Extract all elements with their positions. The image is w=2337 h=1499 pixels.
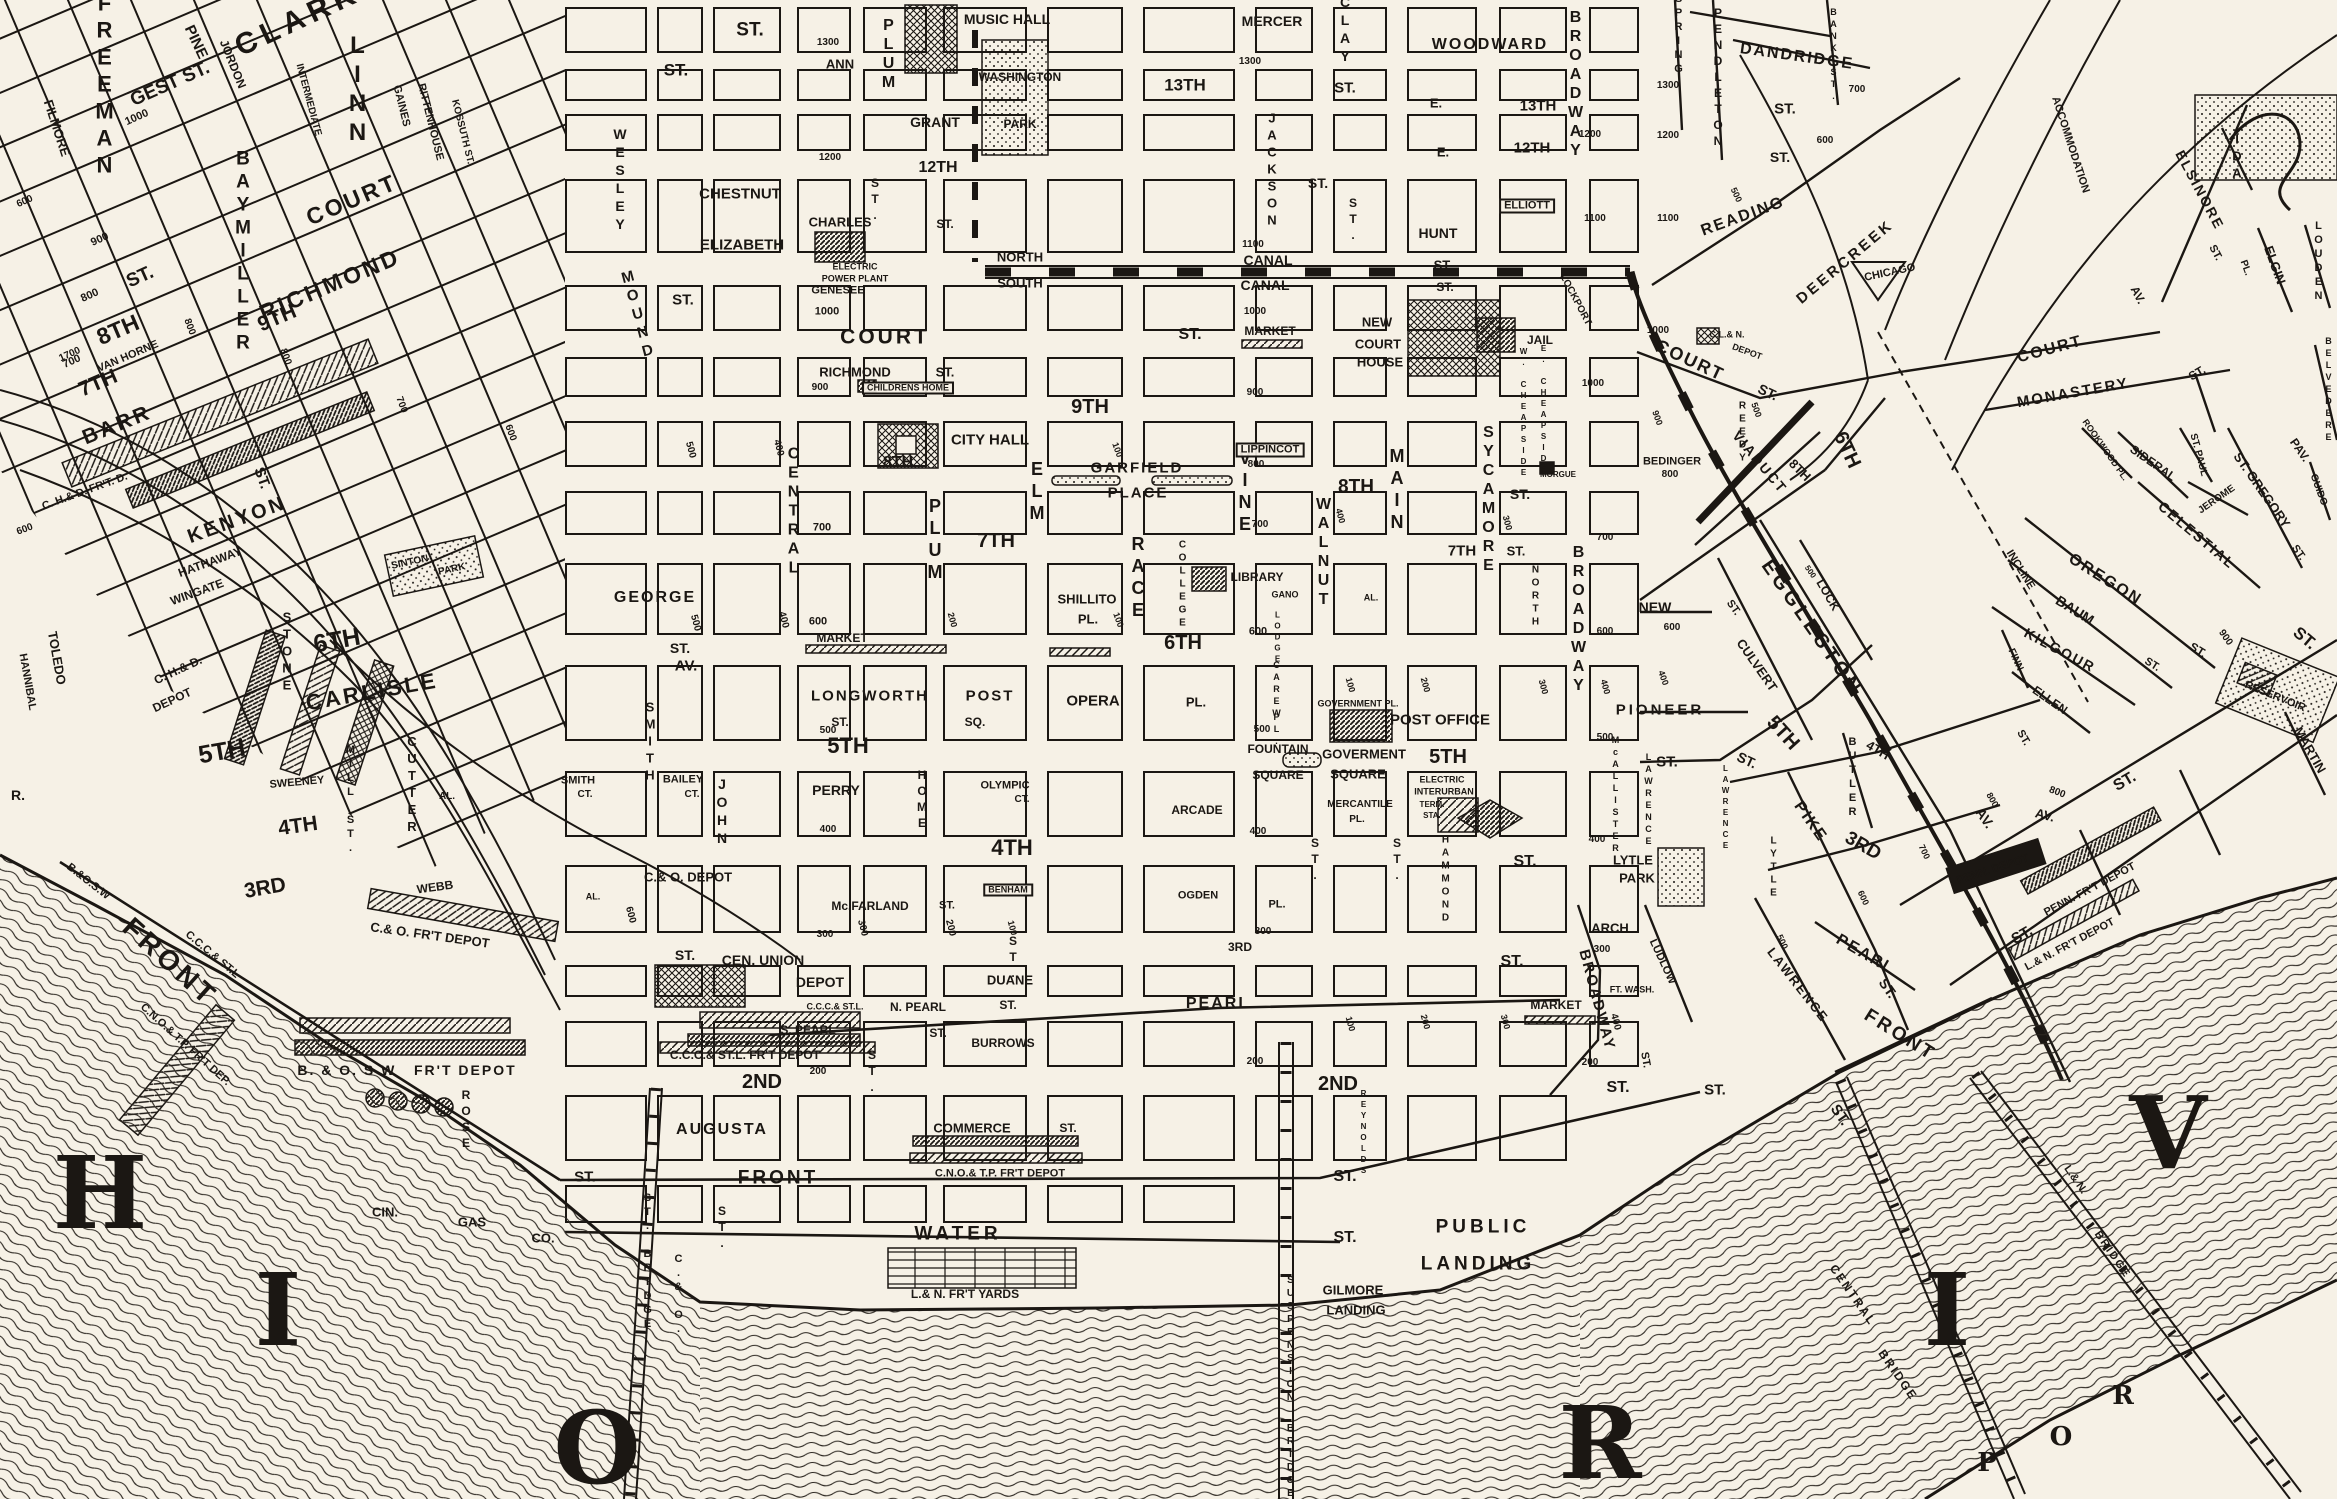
map-label: READING	[1699, 194, 1787, 239]
map-label: 1000	[124, 108, 151, 128]
map-label: McALLISTER	[1611, 735, 1620, 855]
map-label: ANN	[826, 58, 854, 71]
map-label: CANAL	[1244, 253, 1293, 267]
map-label: ST.	[2206, 243, 2223, 262]
map-label: AL.	[586, 893, 601, 902]
map-label: 200	[810, 1067, 827, 1077]
map-label: L.& N. FR'T YARDS	[911, 1288, 1019, 1300]
map-label: 900	[2216, 628, 2234, 647]
map-label: ST.	[670, 641, 690, 655]
map-label: SIDERAL	[2128, 443, 2178, 483]
map-label: MORGUE	[1540, 471, 1576, 479]
map-label: 4TH	[991, 837, 1033, 859]
map-label: 600	[1664, 623, 1681, 633]
map-label: SQUARE	[1330, 768, 1386, 781]
map-label: WALNUT	[1315, 496, 1331, 610]
map-label: HOUSE	[1357, 356, 1403, 369]
map-label: LUDLOW	[1647, 938, 1677, 986]
map-label: DEPOT	[151, 686, 194, 714]
map-label: GOVERNMENT PL.	[1317, 700, 1398, 709]
map-label: W. CHEAPSIDE	[1519, 347, 1527, 479]
map-label: ELLEN	[2030, 684, 2069, 716]
map-label: 4TH	[277, 813, 319, 839]
map-label: COURT	[1653, 336, 1728, 384]
map-label: HANNIBAL	[17, 653, 38, 711]
map-label: ST.	[1436, 281, 1453, 293]
map-label: ST.	[1391, 836, 1403, 884]
map-label: ARCH	[1591, 922, 1629, 935]
map-label: 400	[1334, 508, 1347, 525]
map-label: COURT	[2016, 334, 2085, 367]
map-label: PAV.	[2288, 436, 2312, 463]
map-label: ST.	[675, 948, 695, 962]
map-label: WASHINGTON	[979, 71, 1061, 83]
map-label: ELSINORE	[2173, 148, 2226, 232]
map-label: SMITH	[644, 700, 657, 785]
map-label: AV.	[2128, 284, 2147, 306]
map-label: ELIZABETH	[700, 238, 784, 253]
map-label: BAYMILLER	[234, 149, 253, 356]
map-label: GAINES	[391, 84, 412, 128]
map-label: PENN. DEPOT	[1956, 853, 2030, 887]
map-label: 2ND	[742, 1072, 782, 1092]
map-label: 500	[1254, 725, 1271, 735]
map-label: 400	[1589, 835, 1606, 845]
map-label: I	[1924, 1260, 1971, 1360]
map-label: CUTTER	[406, 734, 419, 836]
map-label: ST.	[1724, 598, 1742, 617]
map-label: ST.	[1507, 545, 1526, 558]
map-label: ST.	[1500, 954, 1523, 970]
map-label: 500	[683, 441, 697, 460]
map-label: GAS	[458, 1216, 486, 1229]
map-label: STONE	[281, 610, 294, 695]
map-label: S. PEARL	[780, 1024, 835, 1036]
map-label: 3RD	[1842, 828, 1884, 863]
map-label: 200	[943, 919, 957, 938]
map-label: ROOKWOOD PL.	[2081, 418, 2130, 483]
map-label: ST.	[1309, 836, 1321, 884]
map-label: POST OFFICE	[1390, 713, 1490, 728]
map-label: 1100	[1657, 214, 1679, 224]
map-label: KILGOUR	[2022, 625, 2098, 674]
map-label: 12TH	[1514, 141, 1551, 156]
map-label: PLACE	[1108, 486, 1169, 501]
map-label: LIPPINCOT	[1236, 443, 1305, 458]
map-label: CENTRAL	[785, 446, 801, 579]
map-label: ST.	[1876, 976, 1899, 1001]
map-label: 1300	[1657, 81, 1679, 91]
map-label: ST.	[1756, 381, 1780, 402]
map-label: FINN	[2006, 647, 2025, 672]
map-label: 600	[502, 423, 517, 442]
map-label: 300	[1501, 515, 1514, 532]
map-label: R	[2112, 1383, 2134, 1409]
map-label: ST.	[1704, 1083, 1726, 1098]
map-label: HOME	[916, 768, 928, 832]
map-label: WOODWARD	[1432, 37, 1548, 53]
map-label: GANO	[1272, 591, 1299, 600]
map-label: FRONT	[1861, 1006, 1939, 1065]
map-label: KOSSUTH ST.	[449, 99, 475, 166]
map-label: 100	[1110, 441, 1124, 458]
map-label: MOUND	[618, 267, 657, 363]
map-label: ST.	[2290, 624, 2320, 653]
map-label: L.& N.	[2061, 1164, 2088, 1196]
map-label: 8TH	[1338, 478, 1374, 497]
map-label: 200	[946, 612, 959, 629]
map-label: ST.	[574, 1170, 596, 1185]
map-label: 700	[1917, 843, 1932, 860]
map-label: INTERURBAN	[1414, 788, 1474, 797]
map-label: ELECTRIC	[1420, 776, 1465, 785]
map-label: 800	[2047, 785, 2066, 800]
map-label: 800	[1248, 460, 1265, 470]
map-label: CELESTIAL	[2156, 499, 2238, 571]
map-label: CANAL	[1241, 278, 1290, 292]
map-label: PENN. FR'T DEPOT	[2043, 861, 2138, 918]
map-label: C.C.C.& ST.L.	[806, 1003, 863, 1012]
map-label: CO.	[531, 1232, 554, 1245]
map-label: 8TH	[883, 455, 913, 471]
map-label: 6TH	[312, 625, 363, 658]
map-label: 1000	[1244, 307, 1266, 317]
map-label: 6TH	[1164, 633, 1202, 653]
map-label: DEPOT	[1731, 342, 1763, 361]
map-label: DUANE	[987, 974, 1033, 987]
map-label: SYCAMORE	[1480, 424, 1496, 576]
map-label: COURT	[1355, 338, 1401, 351]
map-label: 1100	[1242, 240, 1264, 250]
map-label: ST.	[1513, 854, 1536, 870]
map-label: I	[255, 1260, 302, 1360]
map-label: LAWRENCE	[1765, 945, 1831, 1024]
map-label: 200	[1419, 677, 1432, 694]
map-label: BROADWAY	[1570, 544, 1586, 696]
map-label: 1000	[815, 307, 839, 318]
map-label: 300	[1499, 1014, 1512, 1031]
map-label: MONASTERY	[2016, 376, 2130, 410]
map-label: P	[1977, 1450, 1997, 1476]
map-label: C. H.& D. FR'T. D.	[41, 471, 129, 512]
map-label: 7TH	[1448, 544, 1476, 559]
map-label: FRONT	[117, 913, 222, 1012]
map-label: SQUARE	[1252, 769, 1303, 781]
map-label: 600	[1597, 627, 1614, 637]
map-label: 3RD	[242, 874, 287, 902]
map-label: CT.	[685, 790, 700, 800]
map-label: CHICAGO	[1863, 262, 1916, 284]
map-label: MARKET	[1530, 999, 1581, 1011]
map-label: 700	[393, 395, 408, 414]
map-label: ELECTRIC	[833, 263, 878, 272]
map-label: CENTRAL	[1828, 1262, 1879, 1327]
map-label: FT. WASH.	[1610, 986, 1655, 995]
map-label: FREEMAN	[93, 0, 115, 180]
map-label: ST.	[1308, 176, 1328, 190]
map-label: SINTON	[391, 554, 430, 572]
map-label: CAREW	[1272, 660, 1281, 720]
map-label: GOVERMENT	[1322, 748, 1406, 761]
map-label: 400	[771, 439, 785, 458]
map-label: 1300	[817, 38, 839, 48]
map-label: SHILLITO	[1058, 593, 1117, 606]
map-label: ST.	[2111, 769, 2139, 794]
map-label: 200	[1419, 1014, 1432, 1031]
map-label: 300	[1537, 679, 1550, 696]
map-label: GEORGE	[614, 590, 696, 606]
map-label: 900	[89, 231, 110, 249]
map-label: 300	[817, 930, 834, 940]
map-label: ST.	[2289, 543, 2307, 562]
map-label: 1000	[1582, 379, 1604, 389]
map-label: ST.	[2009, 923, 2035, 947]
map-label: 600	[623, 906, 637, 925]
map-label: CT.	[1015, 795, 1030, 805]
map-label: COURT	[840, 327, 930, 348]
map-label: E.	[1437, 146, 1449, 159]
map-label: TOLEDO	[46, 630, 68, 685]
map-label: OGDEN	[1178, 891, 1218, 902]
map-label: 5TH	[1429, 747, 1467, 767]
map-label: GILMORE	[1323, 1284, 1384, 1297]
map-label: CIN.	[372, 1206, 398, 1219]
map-label: 2ND	[1318, 1074, 1358, 1094]
map-label: ST.	[672, 293, 694, 308]
map-label: ST.	[2014, 728, 2031, 747]
map-label: BAILEY	[663, 775, 703, 786]
map-label: DEERCREEK	[1794, 217, 1896, 306]
map-label: Mc.FARLAND	[831, 900, 908, 912]
map-label: NEW	[1639, 600, 1672, 614]
map-label: WEBB	[416, 879, 454, 896]
map-label: CITY HALL	[951, 433, 1029, 448]
map-label: PARK	[1003, 118, 1036, 130]
map-label: RESERVOIR	[2243, 680, 2307, 714]
map-label: 400	[820, 825, 837, 835]
map-label: CLAY	[1338, 0, 1352, 66]
map-label: DEPOT	[796, 975, 844, 989]
map-label: O	[553, 1398, 640, 1498]
map-label: WATER	[914, 1225, 1001, 1244]
map-label: INTERMEDIATE	[294, 63, 323, 137]
map-label: CARLISLE	[304, 670, 440, 715]
map-label: BRIDGE	[1285, 1423, 1295, 1499]
map-label: ST.	[999, 999, 1016, 1011]
map-label: FOUNTAIN	[1247, 743, 1308, 755]
map-label: 300	[855, 919, 869, 938]
map-label: 600	[1856, 889, 1871, 906]
map-label: SMITH	[561, 776, 595, 787]
map-label: ST.	[716, 1204, 728, 1252]
map-label: C.N.O.& T.P. FR'T DEP.	[138, 1002, 232, 1088]
map-label: PUBLIC	[1436, 1218, 1531, 1237]
map-label: WINGATE	[169, 577, 226, 607]
map-label: OREGON	[2066, 551, 2145, 609]
map-label: B. & O. S W FR'T DEPOT	[297, 1063, 516, 1077]
map-label: LOUDEN	[2313, 220, 2324, 304]
map-label: CEN. UNION	[722, 953, 804, 967]
map-label: AUGUSTA	[676, 1122, 768, 1138]
map-label: REYNOLDS	[1359, 1089, 1367, 1177]
map-label: 700	[813, 523, 831, 534]
map-label: ST.	[1347, 196, 1359, 244]
map-label: RITTENHOUSE	[415, 82, 445, 161]
map-label: CHILDRENS HOME	[862, 382, 954, 395]
map-label: 1300	[1239, 57, 1261, 67]
map-label: ST.	[936, 366, 955, 379]
map-label: JACKSON	[1266, 111, 1279, 230]
map-label: C.& O. DEPOT	[644, 871, 732, 884]
map-label: LINN	[345, 32, 369, 148]
map-label: ST.	[2187, 640, 2208, 659]
map-label: PARK	[437, 562, 466, 578]
map-label: PEARL	[1833, 932, 1897, 978]
map-label: 500	[688, 614, 702, 633]
map-label: 8TH	[94, 311, 143, 349]
map-label: C.L.& N.	[1710, 331, 1745, 340]
map-label: PERRY	[812, 783, 860, 797]
map-label: PIONEER	[1616, 703, 1705, 718]
map-label: PL.	[1078, 613, 1098, 626]
map-label: ST. BRIDGE	[642, 1192, 653, 1332]
map-label: GUIDO	[2308, 473, 2329, 507]
map-label: 600	[15, 194, 34, 210]
map-label: RICHMOND	[819, 366, 891, 379]
map-label: SWEENEY	[269, 775, 325, 791]
map-label: LOCK	[1814, 577, 1841, 612]
map-label: 600	[809, 617, 827, 628]
map-label: ELGIN	[2262, 244, 2288, 286]
map-label: 1200	[819, 153, 841, 163]
map-label: 1100	[1584, 214, 1606, 224]
map-label: NORTH	[1530, 565, 1540, 630]
map-label: H	[53, 1143, 147, 1243]
map-label: 700	[1849, 85, 1866, 95]
map-label: ST.	[866, 1048, 878, 1096]
map-label: FILMORE	[42, 98, 72, 158]
map-label: 900	[812, 383, 829, 393]
map-label: 500	[1597, 733, 1614, 743]
map-label: CT.	[578, 790, 593, 800]
map-label: BEDINGER	[1643, 457, 1701, 468]
map-label: R	[1558, 1393, 1641, 1493]
map-label: 7TH	[977, 531, 1015, 551]
map-label: ST.	[664, 62, 689, 79]
map-label: PEARL	[1186, 996, 1250, 1012]
map-label: 300	[1594, 945, 1611, 955]
map-label: ST.	[1510, 487, 1530, 501]
map-label: 300	[1255, 927, 1272, 937]
map-label: LOCKPORT	[1557, 273, 1592, 327]
map-label: 1000	[1647, 326, 1669, 336]
map-label: IDA	[2231, 132, 2244, 183]
map-label: ST.	[936, 218, 953, 230]
map-label: 7TH	[76, 366, 121, 401]
map-label: E.	[1430, 97, 1442, 110]
map-label: COURT	[303, 171, 401, 230]
map-label: BANK ST.	[1829, 7, 1838, 103]
map-label: SOUTH	[997, 277, 1043, 290]
map-label: 900	[1650, 409, 1664, 426]
map-label: BELVEDERE	[2324, 336, 2333, 444]
map-label: LANDING	[1421, 1255, 1536, 1274]
map-label: PARK	[1619, 872, 1655, 885]
map-label: 100	[1344, 677, 1357, 694]
map-label: NORTH	[997, 251, 1043, 264]
map-label: OPERA	[1066, 694, 1119, 709]
map-label: 3RD	[1228, 941, 1252, 953]
map-label: N. PEARL	[890, 1001, 946, 1013]
map-label: ELLIOTT	[1499, 199, 1555, 214]
map-label: ST.	[2186, 363, 2207, 382]
map-label: 200	[1582, 1058, 1599, 1068]
map-label: MILL ST.	[345, 744, 356, 856]
map-label: E. CHEAPSIDE	[1539, 344, 1547, 476]
map-label: BROADWAY	[1576, 948, 1617, 1052]
map-label: BURROWS	[971, 1037, 1034, 1049]
map-label: 600	[1249, 627, 1267, 638]
map-label: ST. PAUL	[2188, 433, 2209, 478]
map-label: BUTLER	[1847, 736, 1858, 820]
map-label: LYTLE	[1613, 854, 1653, 867]
map-label: LAWRENCE	[1644, 752, 1653, 848]
map-label: BARR	[79, 402, 154, 449]
map-label: AV.	[1973, 805, 1997, 830]
map-label: LANDING	[1326, 1304, 1385, 1317]
map-label: ST.	[2142, 656, 2161, 674]
map-label: L.& N. FR'T DEPOT	[2023, 917, 2116, 974]
map-label: 400	[1599, 679, 1612, 696]
map-label: AL.	[1364, 594, 1379, 603]
map-label: V	[2129, 1083, 2207, 1183]
map-label: AV.	[675, 659, 698, 674]
map-label: PL.	[2238, 259, 2253, 277]
map-label: C. H.& D.	[152, 654, 204, 687]
map-label: PL.	[1186, 696, 1206, 709]
map-label: KENYON	[185, 493, 289, 547]
map-label: POWER PLANT	[822, 275, 889, 284]
map-label: ST.	[1434, 259, 1453, 272]
map-label: PINE	[182, 23, 210, 61]
map-label: ST.	[1774, 102, 1796, 117]
map-label: LAWRENCE	[1721, 764, 1729, 852]
map-label: ST.	[939, 901, 955, 912]
map-label: 500	[1749, 401, 1763, 418]
map-label: CHARLES	[809, 216, 872, 229]
map-label: RACE	[1129, 534, 1147, 622]
labels-layer: CLARKPINEJORDONGEST ST.INTERMEDIATELINNG…	[0, 0, 2337, 1499]
map-label: 400	[1250, 827, 1267, 837]
map-label: 200	[1247, 1057, 1264, 1067]
map-label: 800	[181, 317, 196, 336]
map-label: 800	[277, 347, 292, 366]
map-label: PLUM	[926, 496, 944, 584]
map-label: O	[2050, 1424, 2073, 1450]
map-label: POST	[966, 689, 1015, 704]
map-label: 400	[776, 611, 790, 630]
map-label: HUNT	[1419, 226, 1458, 240]
map-label: C.C.C.& ST.L. FR'T DEPOT	[670, 1049, 820, 1061]
map-label: BENHAM	[983, 884, 1033, 897]
map-label: 100	[1111, 611, 1125, 628]
map-label: BRIDGE	[2092, 1229, 2132, 1280]
map-label: 700	[1252, 520, 1269, 530]
map-label: STA.	[1423, 812, 1441, 820]
map-label: MUSIC HALL	[964, 12, 1050, 26]
map-label: B.&O.S.W	[64, 862, 111, 902]
map-label: CHESTNUT	[699, 187, 781, 202]
